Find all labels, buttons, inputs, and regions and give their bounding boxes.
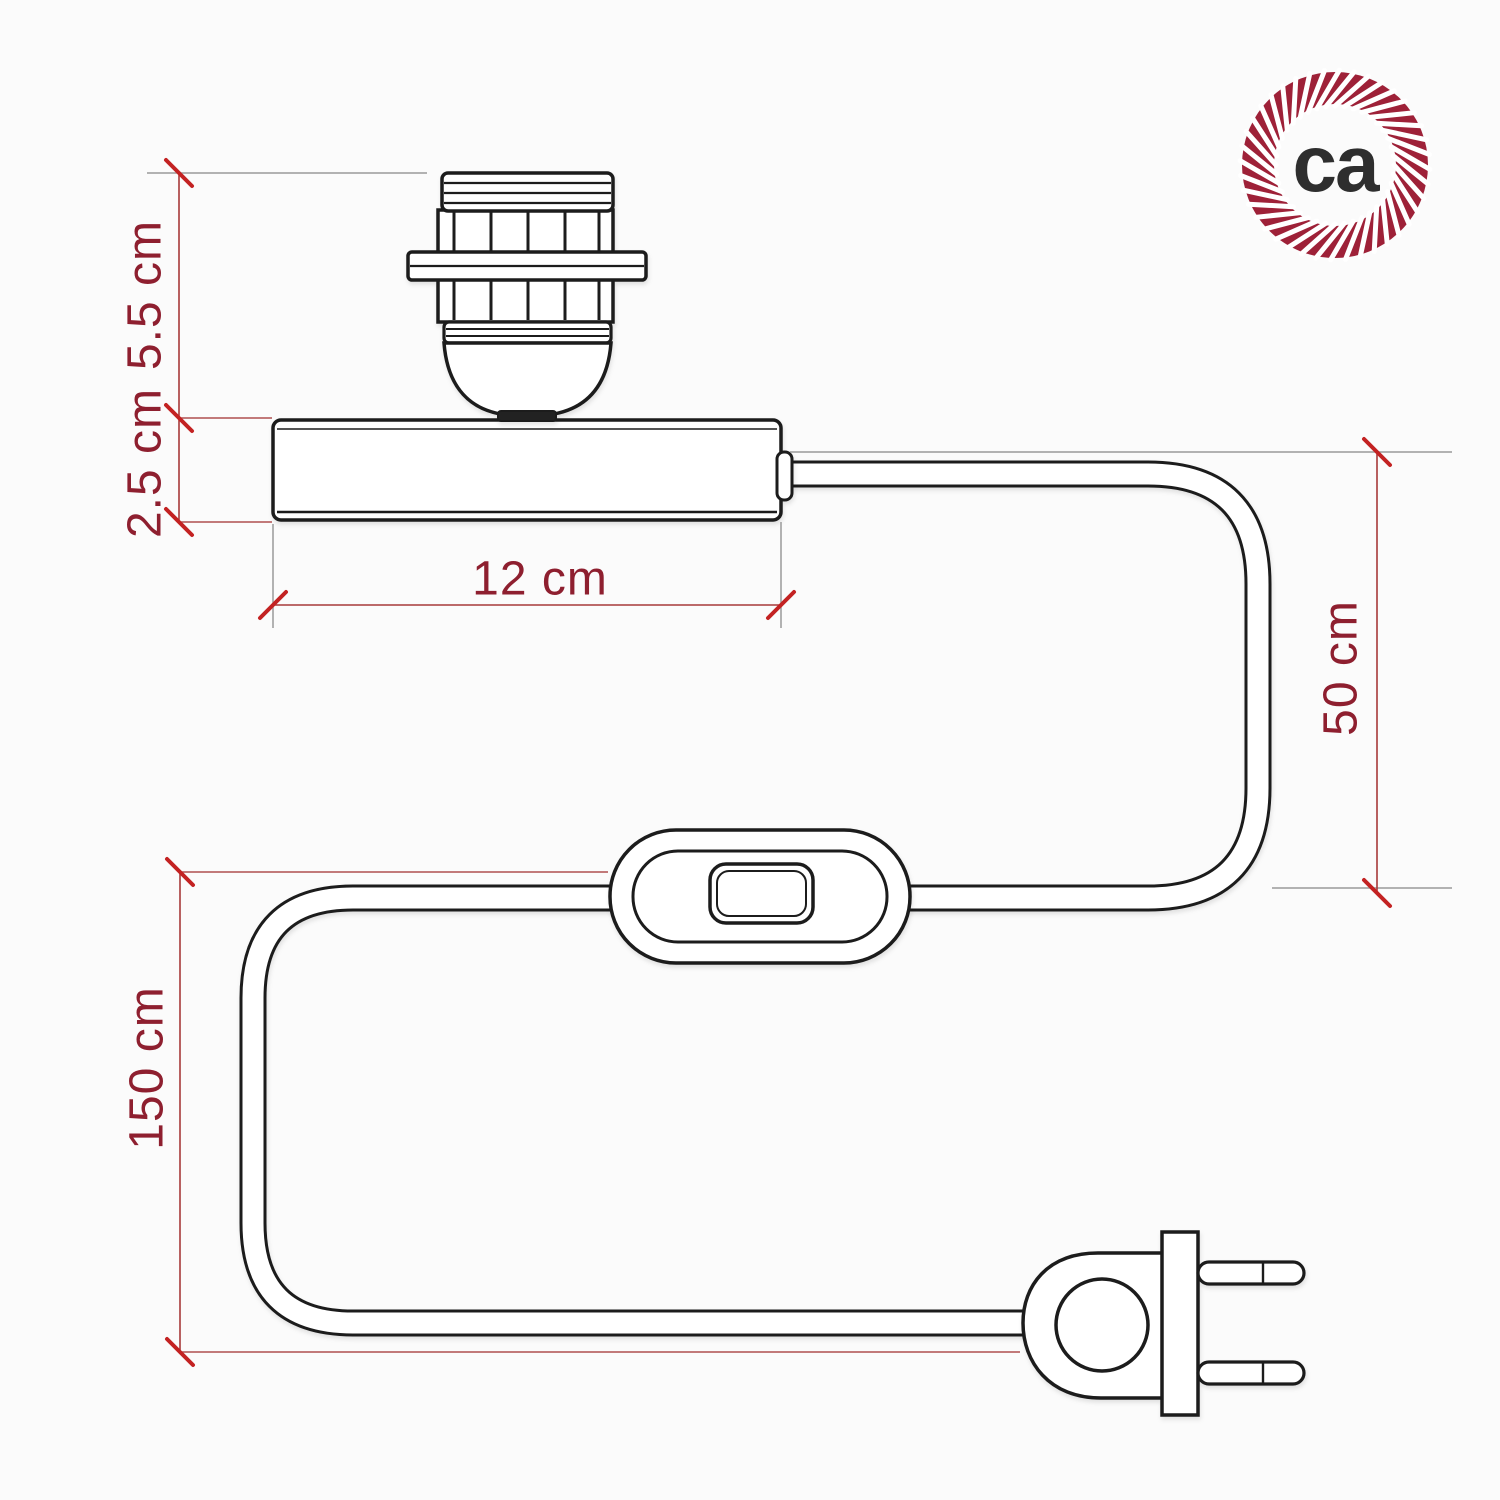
label-lower-cable-length: 150 cm: [121, 986, 174, 1149]
label-base-width: 12 cm: [472, 553, 608, 606]
diagram-canvas: 5.5 cm 2.5 cm 12 cm 50 cm 150 cm ca: [0, 0, 1500, 1500]
cable-lower-path: [253, 898, 1035, 1323]
logo-rope-twist: [1374, 207, 1377, 252]
logo-rope-twist: [1377, 123, 1422, 126]
brand-logo: ca: [1240, 70, 1430, 260]
base-cable-gland: [777, 452, 792, 500]
lamp-socket-drawing: [408, 173, 646, 421]
base-body: [273, 420, 781, 520]
socket-bottom-threads: [444, 322, 611, 343]
cable-lower-core: [253, 898, 1035, 1323]
label-socket-height: 5.5 cm: [119, 220, 172, 370]
inline-switch-drawing: [610, 830, 910, 963]
plug-pin-top: [1198, 1262, 1304, 1284]
label-upper-cable-length: 50 cm: [1315, 600, 1368, 736]
logo-rope-twist: [1293, 79, 1296, 124]
dimension-labels: 5.5 cm 2.5 cm 12 cm 50 cm 150 cm: [119, 220, 1368, 1150]
power-plug-drawing: [1023, 1232, 1304, 1415]
dimension-lines: [179, 173, 1377, 1352]
label-base-height: 2.5 cm: [119, 388, 172, 538]
logo-text: ca: [1293, 119, 1380, 208]
switch-rocker-button-inner: [717, 871, 806, 916]
plug-body-circle: [1056, 1279, 1148, 1371]
lamp-base-drawing: [273, 420, 792, 520]
logo-rope-twist: [1249, 204, 1294, 207]
socket-foot: [498, 411, 556, 421]
socket-bowl: [444, 343, 611, 414]
plug-face-plate: [1162, 1232, 1198, 1415]
plug-pin-bottom: [1198, 1362, 1304, 1384]
lamp-dimension-diagram: 5.5 cm 2.5 cm 12 cm 50 cm 150 cm ca: [0, 0, 1500, 1500]
dimension-ticks: [166, 160, 1390, 1365]
